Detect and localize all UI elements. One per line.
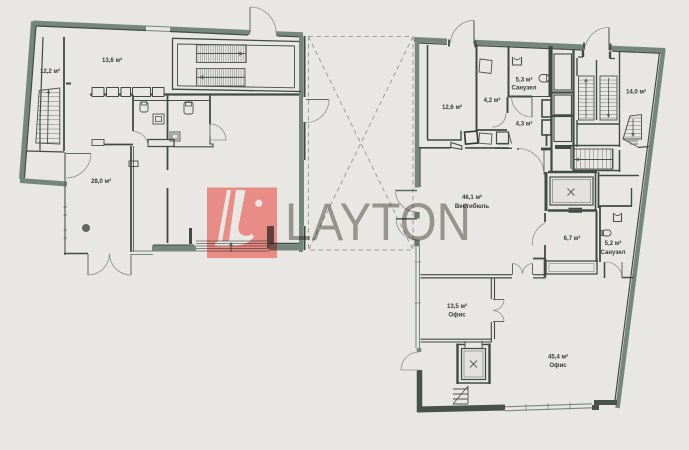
svg-text:13,5 м²: 13,5 м² [447, 303, 467, 310]
svg-text:4,3 м²: 4,3 м² [516, 121, 533, 128]
svg-text:Офис: Офис [549, 362, 567, 369]
svg-text:12,2 м²: 12,2 м² [40, 68, 60, 75]
svg-text:13,6 м²: 13,6 м² [102, 57, 122, 64]
svg-text:45,4 м²: 45,4 м² [548, 354, 568, 361]
svg-text:6,7 м²: 6,7 м² [564, 235, 581, 242]
svg-text:5,3 м²: 5,3 м² [516, 77, 533, 84]
svg-text:28,0 м²: 28,0 м² [91, 178, 111, 185]
svg-text:14,0 м²: 14,0 м² [626, 89, 646, 96]
svg-text:4,2 м²: 4,2 м² [484, 97, 501, 104]
svg-text:Санузел: Санузел [600, 249, 625, 256]
svg-text:12,6 м²: 12,6 м² [442, 104, 462, 111]
svg-text:LAYTON: LAYTON [285, 193, 471, 252]
svg-text:Офис: Офис [448, 312, 466, 319]
svg-text:5,2 м²: 5,2 м² [605, 240, 622, 247]
svg-text:Санузел: Санузел [511, 85, 536, 92]
